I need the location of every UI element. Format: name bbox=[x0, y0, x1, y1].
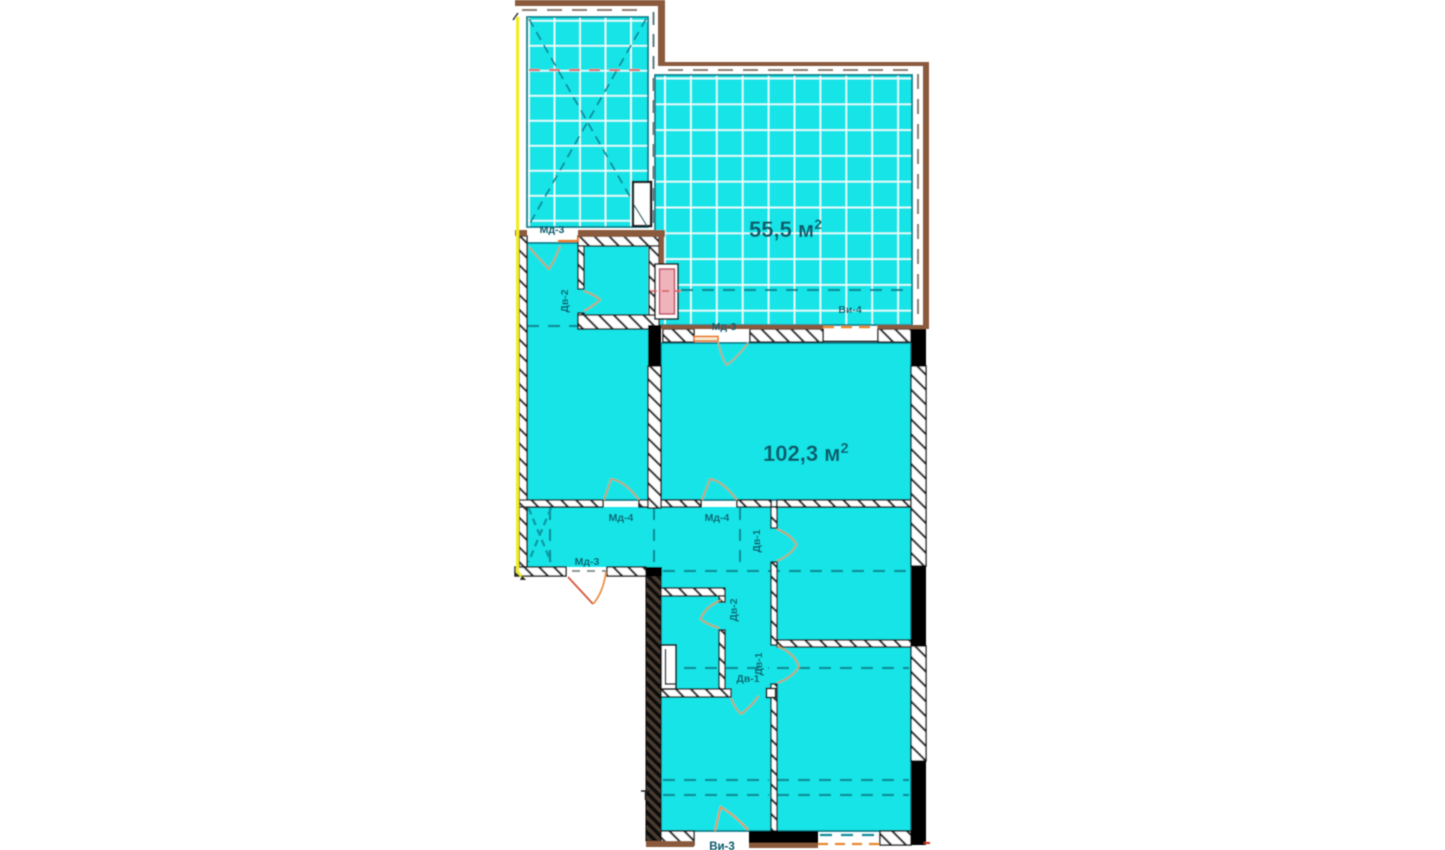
svg-text:Мд-4: Мд-4 bbox=[705, 512, 730, 524]
svg-text:Дв-1: Дв-1 bbox=[736, 673, 759, 685]
svg-text:Мд-3: Мд-3 bbox=[575, 556, 600, 568]
svg-text:Мд-4: Мд-4 bbox=[609, 512, 634, 524]
svg-text:Ви-4: Ви-4 bbox=[838, 304, 862, 316]
svg-text:102,3 м2: 102,3 м2 bbox=[763, 441, 849, 466]
svg-text:Дв-2: Дв-2 bbox=[559, 289, 571, 312]
svg-text:Мд-3: Мд-3 bbox=[712, 321, 737, 333]
svg-text:Ви-3: Ви-3 bbox=[709, 841, 735, 850]
svg-text:Дв-1: Дв-1 bbox=[751, 529, 763, 552]
svg-text:55,5 м2: 55,5 м2 bbox=[749, 216, 822, 242]
svg-text:Дв-2: Дв-2 bbox=[728, 598, 740, 621]
svg-text:Мд-3: Мд-3 bbox=[540, 224, 565, 236]
